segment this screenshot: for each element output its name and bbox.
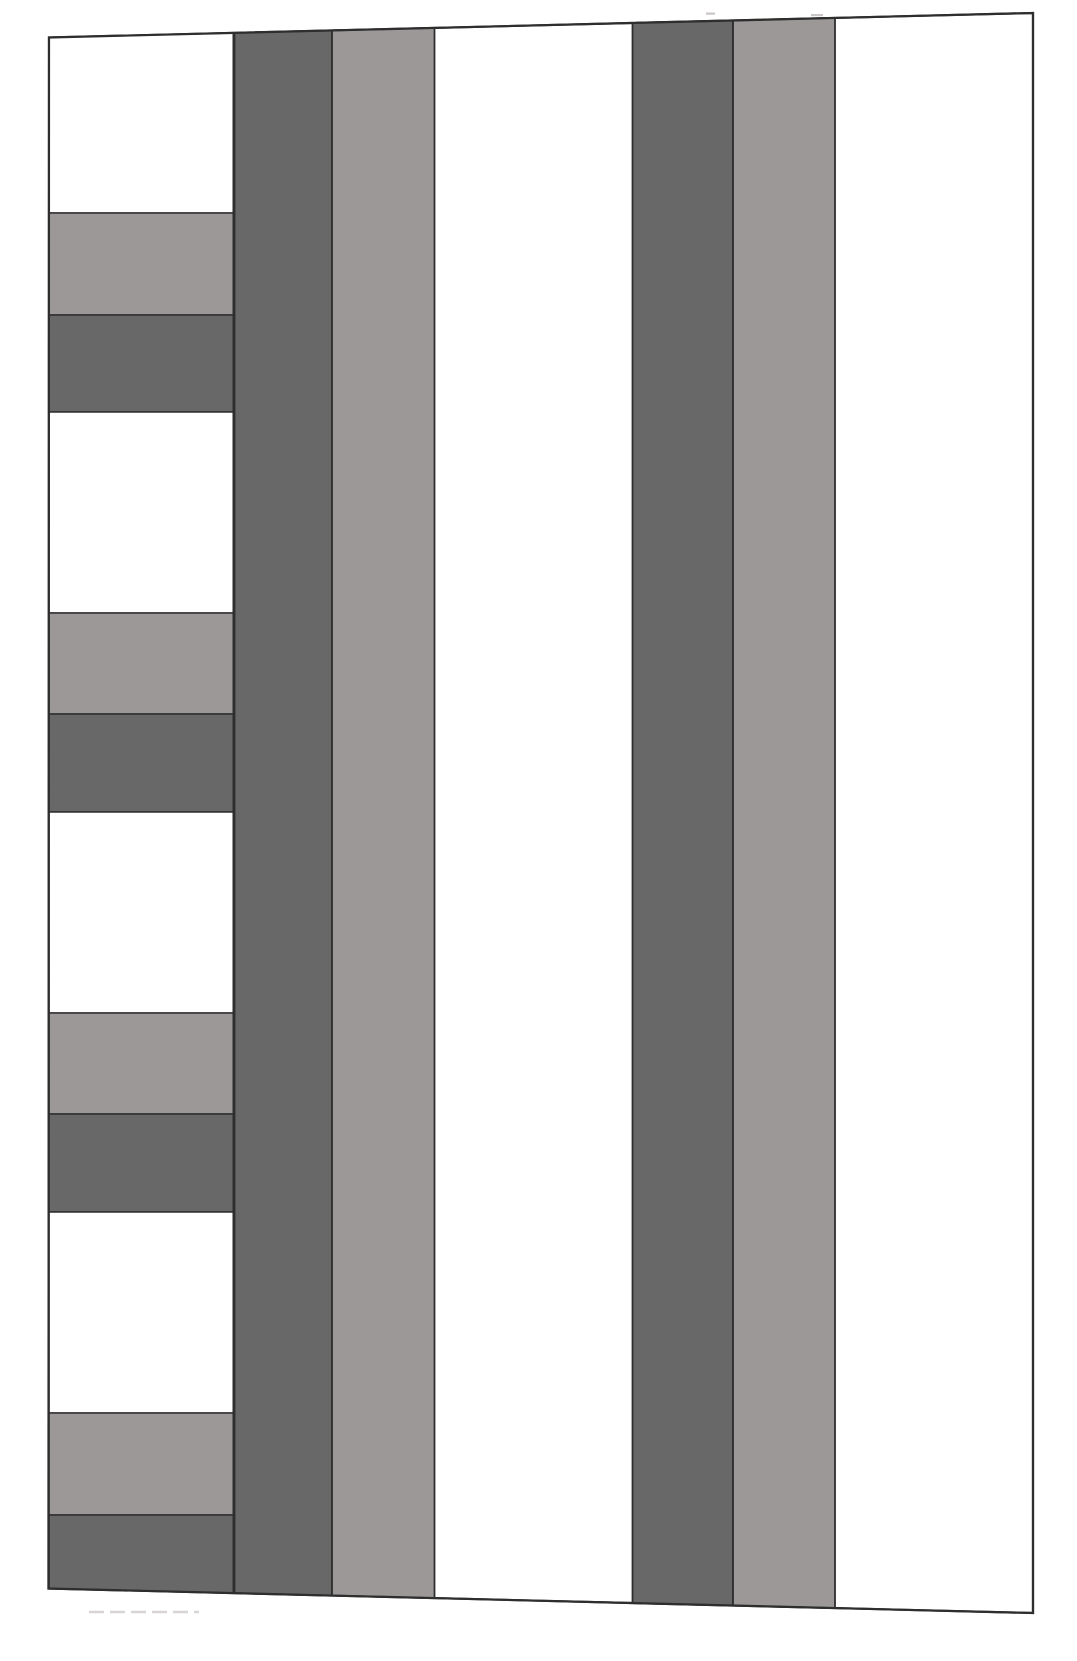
stripe-1-dark [235, 30, 333, 1595]
left-column-band-1-white [49, 33, 233, 213]
left-column-band-12-dark-gray [49, 1515, 233, 1593]
left-column-band-8-light-gray [49, 1013, 233, 1114]
left-column-band-9-dark-gray [49, 1114, 233, 1212]
left-column-band-6-dark-gray [49, 714, 233, 812]
left-column-band-4-white [49, 412, 233, 613]
left-column-band-5-light-gray [49, 613, 233, 714]
faint-top-mark-2 [811, 14, 823, 16]
drawing-page [0, 0, 1077, 1661]
stripe-3-dark [633, 20, 734, 1605]
left-column-band-11-light-gray [49, 1413, 233, 1515]
faint-top-mark-1 [706, 13, 715, 15]
left-column-band-2-light-gray [49, 213, 233, 315]
left-column-band-7-white [49, 812, 233, 1013]
striped-panel-drawing [0, 0, 1077, 1661]
stripe-2-light [332, 28, 435, 1598]
left-column-band-3-dark-gray [49, 315, 233, 412]
stripe-4-light [733, 18, 835, 1608]
left-column-band-10-white [49, 1212, 233, 1413]
